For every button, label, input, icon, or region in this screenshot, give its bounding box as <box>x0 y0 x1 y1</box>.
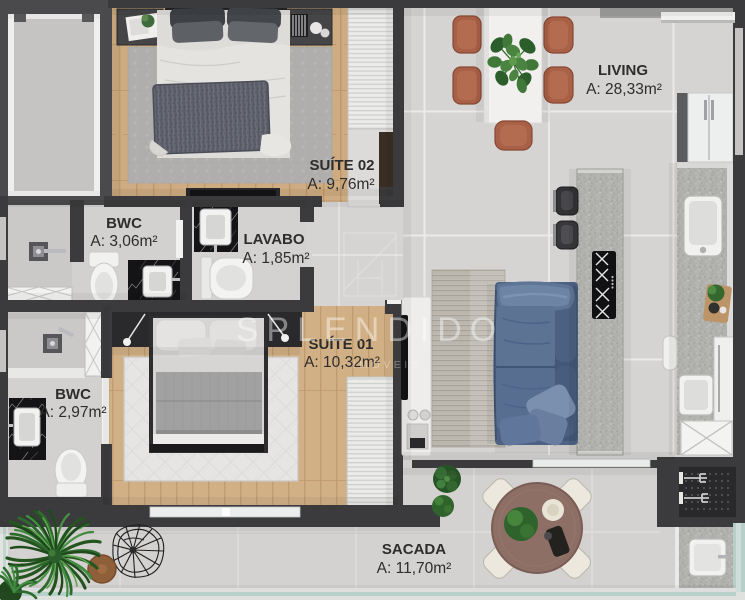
svg-text:A: 11,70m²: A: 11,70m² <box>377 560 452 577</box>
svg-text:A: 28,33m²: A: 28,33m² <box>586 81 662 98</box>
svg-text:A: 1,85m²: A: 1,85m² <box>242 250 309 267</box>
svg-text:LIVING: LIVING <box>598 62 648 79</box>
svg-text:SPLENDIDO: SPLENDIDO <box>236 311 505 349</box>
svg-text:A: 3,06m²: A: 3,06m² <box>90 233 157 250</box>
svg-text:SACADA: SACADA <box>382 541 446 558</box>
svg-text:LAVABO: LAVABO <box>243 231 304 248</box>
svg-text:A: 2,97m²: A: 2,97m² <box>39 404 106 421</box>
svg-text:IMÓVEIS: IMÓVEIS <box>353 358 421 371</box>
svg-text:SUÍTE 02: SUÍTE 02 <box>309 157 374 174</box>
svg-text:BWC: BWC <box>55 386 91 403</box>
svg-text:A: 9,76m²: A: 9,76m² <box>307 176 374 193</box>
svg-text:BWC: BWC <box>106 215 142 232</box>
